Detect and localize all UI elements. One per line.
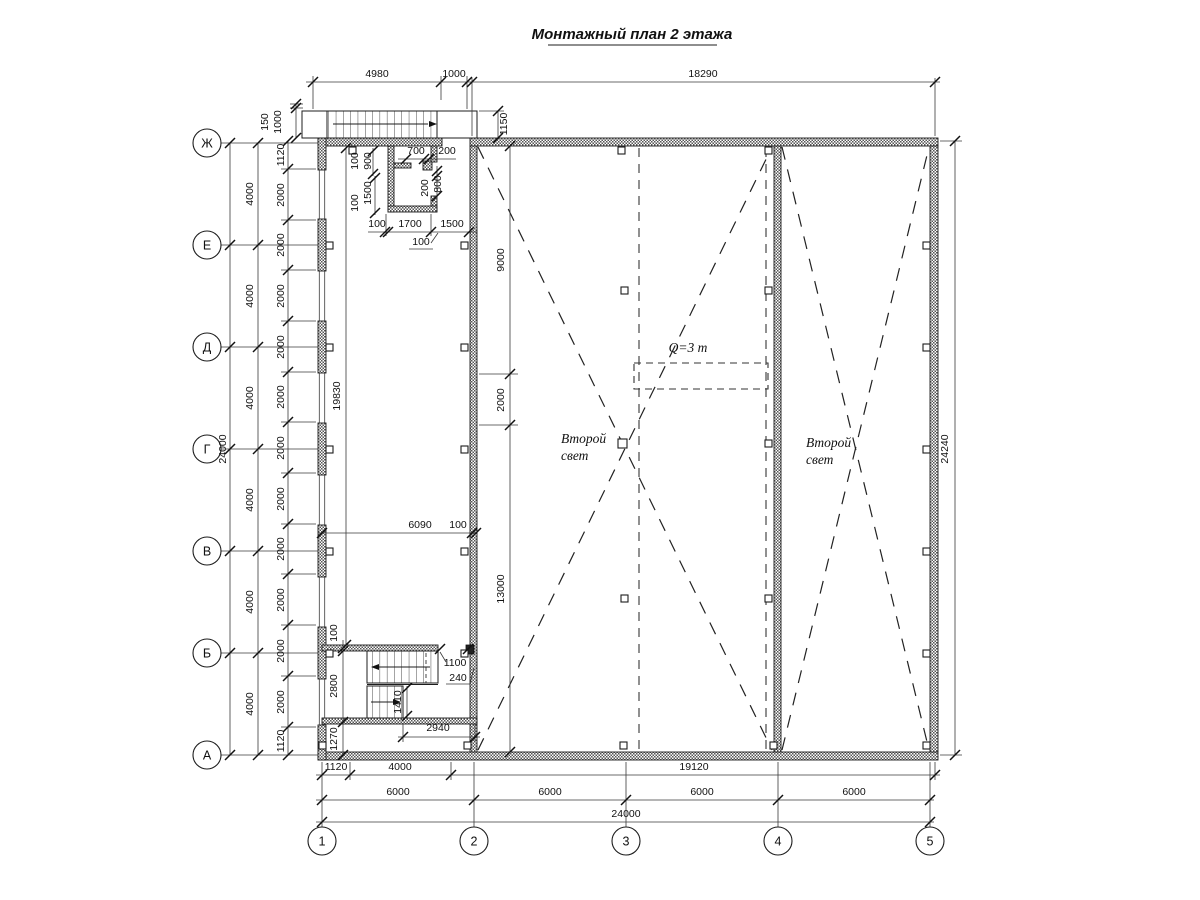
- dim-13000: 13000: [495, 574, 507, 603]
- dim-4000b: 4000: [388, 761, 412, 773]
- dim-s2800: 2800: [328, 674, 340, 698]
- axis-label-4: 4: [775, 835, 782, 849]
- dim-6000: 6000: [842, 786, 866, 798]
- dim-r700: 700: [407, 145, 425, 157]
- axis-label-d: Д: [203, 341, 212, 355]
- axis-label-g: Г: [204, 443, 211, 457]
- dim-chain: 2000: [275, 284, 287, 308]
- dim-19830: 19830: [331, 381, 343, 410]
- dim-s2940: 2940: [426, 722, 450, 734]
- floor-plan-svg: Монтажный план 2 этажа: [0, 0, 1200, 900]
- axis-label-e: Е: [203, 239, 211, 253]
- dim-r200a: 200: [438, 145, 456, 157]
- hall-dashed-lines: [478, 147, 929, 750]
- dim-chain: 2000: [275, 487, 287, 511]
- crane-capacity-label: Q=3 т: [669, 340, 708, 355]
- dim-r1700: 1700: [398, 218, 422, 230]
- dim-r1500b: 1500: [440, 218, 464, 230]
- dim-4000: 4000: [244, 692, 256, 716]
- dim-s240: 240: [449, 672, 467, 684]
- axis-label-zh: Ж: [201, 137, 213, 151]
- dimensions-bottom: 1120 4000 19120 6000 6000 6000 6000 2400…: [316, 761, 940, 827]
- dim-r1500: 1500: [362, 181, 374, 205]
- dim-r100b: 100: [349, 194, 361, 212]
- dim-18290: 18290: [688, 68, 717, 80]
- dim-9000: 9000: [495, 248, 507, 272]
- dim-1150: 1150: [498, 113, 510, 136]
- second-light-label-2-line1: Второй: [806, 435, 851, 450]
- dim-r800: 800: [432, 175, 444, 193]
- dim-chain: 2000: [275, 588, 287, 612]
- dim-chain: 2000: [275, 690, 287, 714]
- dim-s100: 100: [328, 624, 340, 642]
- dim-4000: 4000: [244, 590, 256, 614]
- dim-chain: 1120: [275, 144, 287, 167]
- second-light-label-1-line1: Второй: [561, 431, 606, 446]
- stair-dimensions: 100 2800 1270 1100 240 1410 2940: [328, 624, 480, 760]
- second-light-label-1-line2: свет: [561, 448, 589, 463]
- dim-24000-bottom: 24000: [611, 808, 640, 820]
- dim-1120b: 1120: [325, 761, 348, 773]
- dim-s1410: 1410: [392, 690, 404, 714]
- dim-4000: 4000: [244, 488, 256, 512]
- dim-s1270: 1270: [328, 727, 340, 751]
- external-staircase: [302, 111, 477, 138]
- axis-label-3: 3: [623, 835, 630, 849]
- dim-6090: 6090: [408, 519, 432, 531]
- crane-zone: [634, 363, 768, 389]
- title-block: Монтажный план 2 этажа: [532, 26, 733, 45]
- grid-bubbles-bottom: 1 2 3 4 5: [308, 827, 944, 855]
- page-title: Монтажный план 2 этажа: [532, 26, 733, 43]
- second-light-label-2-line2: свет: [806, 452, 834, 467]
- dim-chain: 1120: [275, 730, 287, 753]
- dim-19120: 19120: [679, 761, 708, 773]
- drawing-sheet: Монтажный план 2 этажа: [0, 0, 1200, 900]
- dim-1000: 1000: [442, 68, 466, 80]
- axis-label-1: 1: [319, 835, 326, 849]
- dim-4000: 4000: [244, 284, 256, 308]
- dim-chain: 2000: [275, 537, 287, 561]
- dim-chain: 2000: [275, 233, 287, 257]
- hall-labels: Q=3 т Второй свет Второй свет: [561, 340, 851, 467]
- room-dimensions: 100 900 1500 100 700 200 200 800 100 170…: [349, 145, 477, 249]
- dimensions-left: 24000 4000 4000 4000 4000 4000 4000 1120…: [217, 136, 318, 760]
- dim-chain: 2000: [275, 385, 287, 409]
- dim-2000h: 2000: [495, 388, 507, 412]
- dim-24240: 24240: [939, 434, 951, 463]
- dim-1000b: 1000: [272, 110, 284, 134]
- dim-24000-left: 24000: [217, 434, 229, 463]
- dim-4000: 4000: [244, 386, 256, 410]
- dim-4000: 4000: [244, 182, 256, 206]
- dim-4980: 4980: [365, 68, 389, 80]
- dim-r900: 900: [362, 152, 374, 170]
- dim-6000: 6000: [386, 786, 410, 798]
- dim-100s: 100: [449, 519, 467, 531]
- dim-r100a: 100: [349, 152, 361, 170]
- dim-chain: 2000: [275, 335, 287, 359]
- axis-label-v: В: [203, 545, 211, 559]
- dim-chain: 2000: [275, 183, 287, 207]
- axis-label-2: 2: [471, 835, 478, 849]
- dim-6000: 6000: [538, 786, 562, 798]
- axis-label-5: 5: [927, 835, 934, 849]
- axis-label-b: Б: [203, 647, 211, 661]
- dim-r200b: 200: [419, 179, 431, 197]
- dim-6000: 6000: [690, 786, 714, 798]
- dim-r100c: 100: [368, 218, 386, 230]
- axis-label-a: А: [203, 749, 212, 763]
- dimensions-right: 24240: [939, 136, 962, 760]
- dim-chain: 2000: [275, 436, 287, 460]
- dim-chain: 2000: [275, 639, 287, 663]
- dim-150: 150: [259, 113, 271, 131]
- dim-r100d: 100: [412, 236, 430, 248]
- dim-s1100: 1100: [444, 657, 467, 669]
